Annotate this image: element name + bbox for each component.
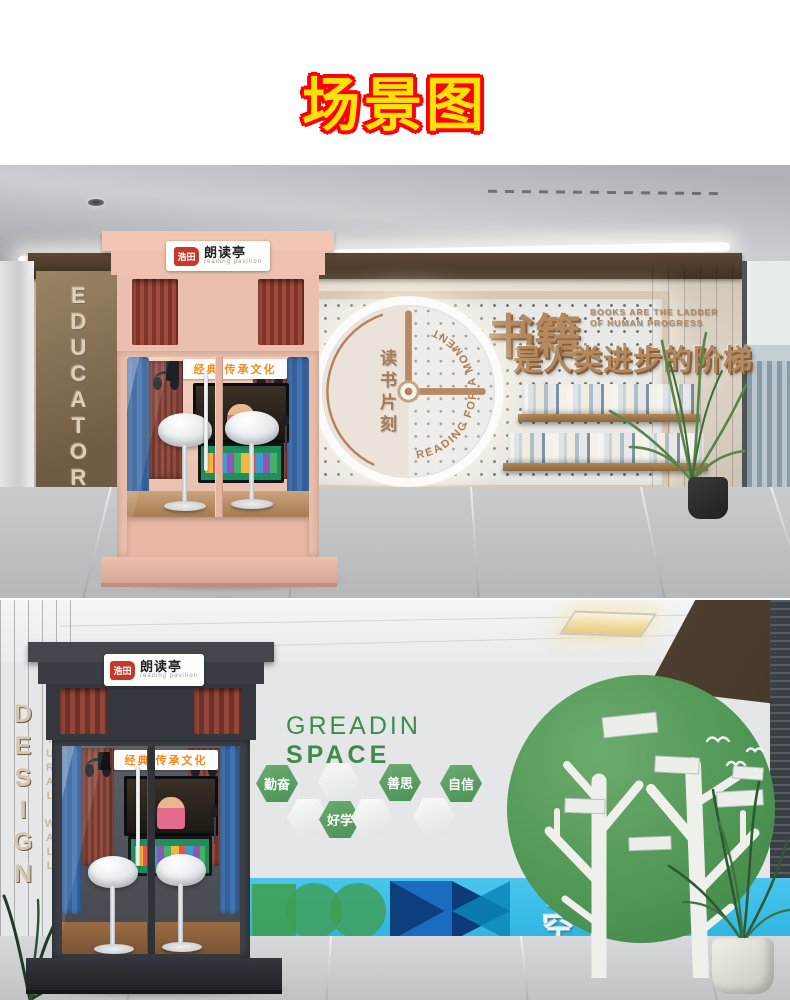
spotlight-icon <box>88 199 104 206</box>
microphone-icon <box>211 806 218 817</box>
plant-icon <box>655 770 790 945</box>
door-stile <box>215 357 223 517</box>
booth-subtitle: reading pavilion <box>140 673 198 680</box>
stool-seat <box>156 854 206 886</box>
stool-pole <box>178 884 183 944</box>
stool-pole <box>249 443 254 501</box>
microphone-stand <box>285 423 287 451</box>
door-lock-keypad[interactable] <box>166 361 179 381</box>
microphone-icon <box>282 415 289 426</box>
fluted-panel <box>258 279 304 345</box>
stool-base <box>231 499 273 509</box>
fluted-panel <box>132 279 178 345</box>
stool-seat <box>225 411 279 445</box>
hexagon-blank <box>413 798 455 835</box>
tile-seam <box>470 487 481 598</box>
hexagon-label: 自信 <box>448 774 474 793</box>
booth-glass-interior[interactable]: 经典 传承文化 <box>62 746 240 954</box>
fluted-panel <box>194 688 242 734</box>
booth-name: 朗读亭 <box>140 660 198 673</box>
presenter <box>157 797 185 829</box>
curtain <box>62 746 82 914</box>
door-handle[interactable] <box>136 766 140 866</box>
ceiling-light <box>559 611 657 638</box>
plant-icon <box>600 323 750 483</box>
hexagon-value: 自信 <box>440 765 482 802</box>
clock-face: READING FOR A MOMENT <box>312 295 505 488</box>
page-title: 场景图 <box>0 58 790 142</box>
stool-seat <box>88 856 138 888</box>
reading-booth-dark: 浩田 朗读亭 reading pavilion 经典 传承文化 <box>26 642 282 994</box>
booth-plinth <box>26 958 282 994</box>
geometric-circle <box>330 883 386 939</box>
stool-base <box>94 944 134 954</box>
clock-phrase-cn: 读书片刻 <box>374 349 399 437</box>
brand-text-block: 朗读亭 reading pavilion <box>204 246 262 266</box>
fluted-panel <box>60 688 108 734</box>
scene-render-top: EDUCATORS 书籍 BOOKS ARE THE LADDER OF HUM… <box>0 165 790 598</box>
geometric-square <box>390 881 452 941</box>
interior-banner: 经典 传承文化 <box>114 750 218 770</box>
hexagon-label: 好学 <box>327 810 353 829</box>
stool-pole <box>110 886 115 946</box>
hexagon-blank <box>351 799 393 836</box>
door-lock-keypad[interactable] <box>98 752 110 770</box>
brand-text-block: 朗读亭 reading pavilion <box>140 660 198 680</box>
stool-base <box>162 942 202 952</box>
booth-kick-panel <box>127 517 309 557</box>
page: 场景图 EDUCATORS 书籍 BOOKS ARE THE LADDER OF… <box>0 0 790 1000</box>
educators-vertical-text: EDUCATORS <box>65 283 91 517</box>
reading-clock-decor: READING FOR A MOMENT 读书片刻 <box>312 295 505 488</box>
door-stile <box>147 746 155 954</box>
stool-pole <box>182 445 187 503</box>
booth-glass-interior[interactable]: 经典 传承文化 <box>127 357 309 517</box>
stool-base <box>164 501 206 511</box>
brand-logo: 浩田 <box>174 247 199 266</box>
plant-pot <box>688 477 728 519</box>
tile-seam <box>324 936 332 1000</box>
reading-booth-pink: 浩田 朗读亭 reading pavilion 经典 传承文化 <box>101 231 337 587</box>
curtain <box>220 746 240 914</box>
booth-plinth <box>101 557 337 587</box>
scene-render-bottom: CULTURAL WALL DESIGN GREADIN SPACE 勤奋 善思… <box>0 600 790 1000</box>
greadin-heading: GREADIN SPACE <box>286 712 421 770</box>
interior-banner: 经典 传承文化 <box>183 359 287 379</box>
plant-pot <box>712 938 774 994</box>
hexagon-label: 善思 <box>387 773 413 792</box>
tile-seam <box>770 487 790 598</box>
booth-sign: 浩田 朗读亭 reading pavilion <box>104 654 204 686</box>
door-handle[interactable] <box>204 375 208 471</box>
greadin-line1: GREADIN <box>286 712 421 741</box>
left-corridor-wall <box>0 261 34 499</box>
touchscreen[interactable] <box>198 443 284 483</box>
tile-seam <box>640 487 669 598</box>
brand-logo: 浩田 <box>110 661 135 680</box>
slogan-en-line1: BOOKS ARE THE LADDER <box>590 307 718 318</box>
microphone-stand <box>214 814 216 844</box>
geometric-triangle <box>390 881 452 941</box>
booth-name: 朗读亭 <box>204 246 262 259</box>
booth-sign: 浩田 朗读亭 reading pavilion <box>166 241 270 271</box>
booth-subtitle: reading pavilion <box>204 259 262 266</box>
